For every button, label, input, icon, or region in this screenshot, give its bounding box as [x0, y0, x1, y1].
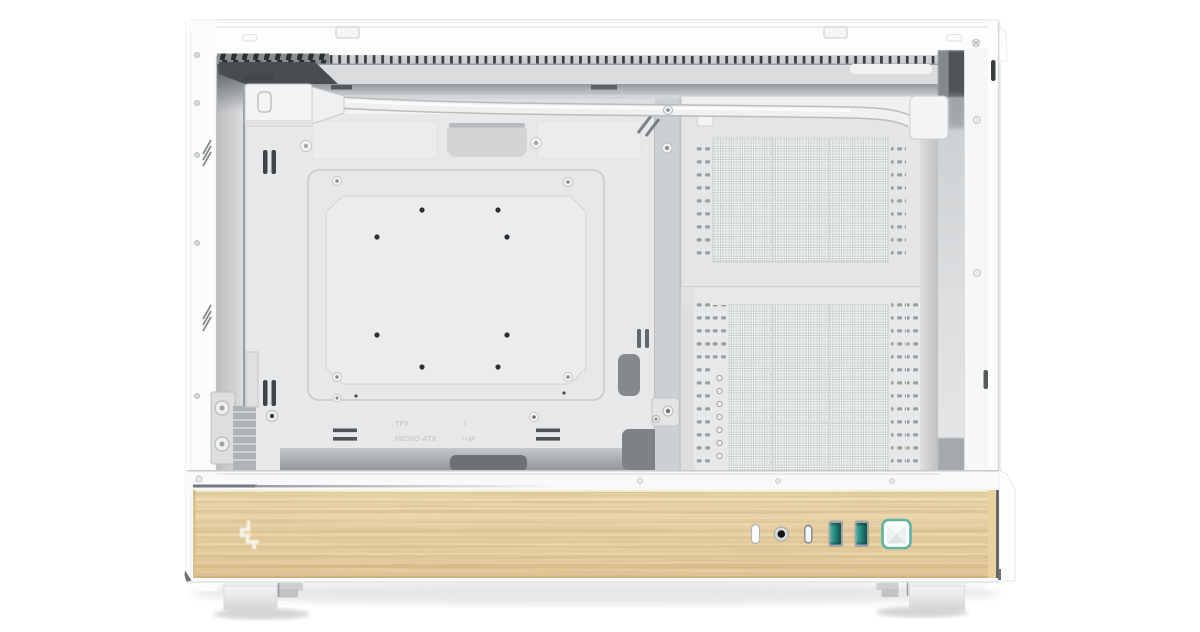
svg-text:I: I	[464, 419, 466, 428]
svg-text:I+M: I+M	[462, 434, 475, 443]
svg-text:TFX: TFX	[395, 419, 409, 428]
svg-text:MICRO-ATX: MICRO-ATX	[395, 434, 437, 443]
